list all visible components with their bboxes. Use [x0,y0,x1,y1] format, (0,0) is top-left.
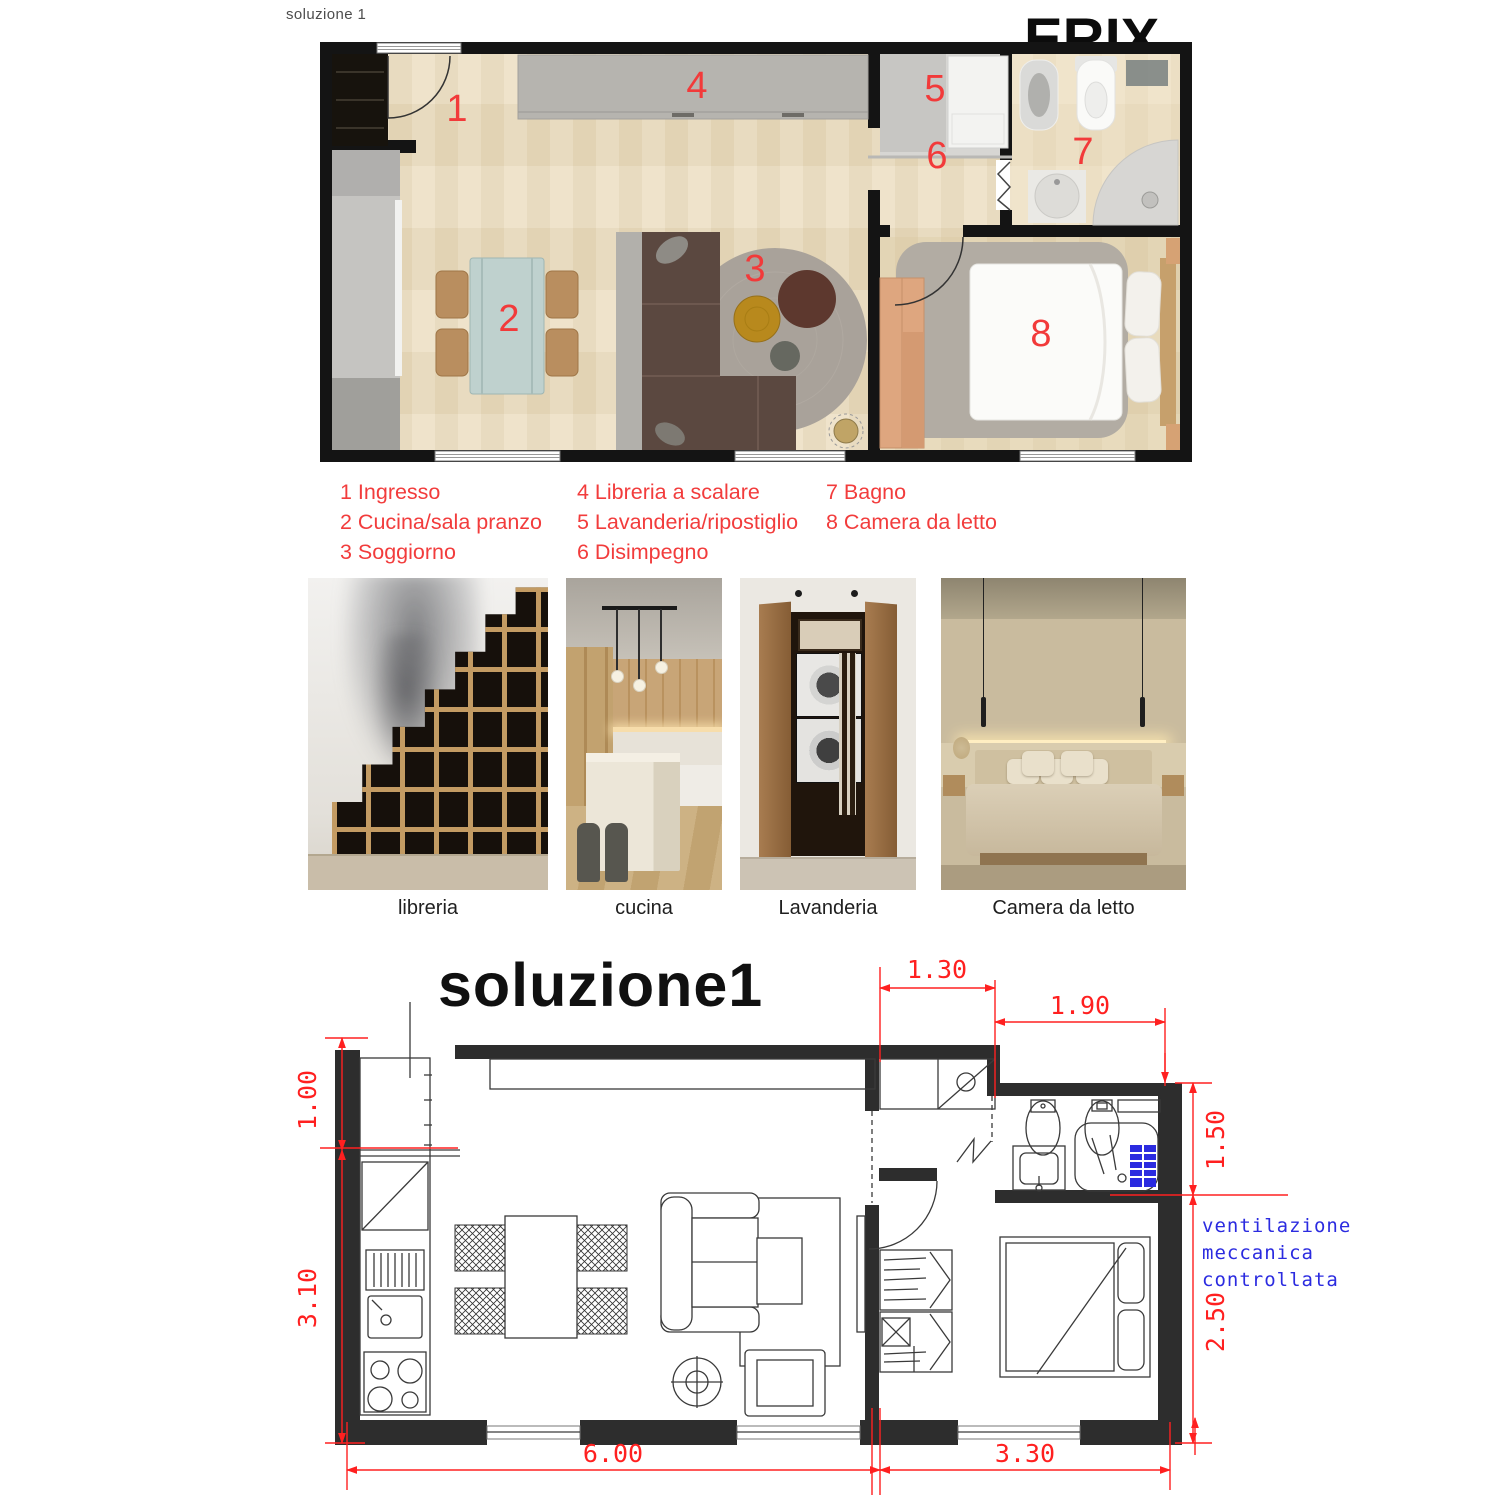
dim-laundry-width: 1.30 [907,955,967,984]
photo-libreria [308,578,548,890]
cad-dining [455,1216,627,1338]
legend-column-1: 1 Ingresso 2 Cucina/sala pranzo 3 Soggio… [340,477,577,567]
cad-windows [487,1426,1080,1439]
bar-stool [577,823,600,882]
pillow [1124,337,1161,403]
room-legend: 1 Ingresso 2 Cucina/sala pranzo 3 Soggio… [340,477,1046,567]
dim-bedroom-side: 2.50 [1201,1292,1230,1352]
coffee-table-gold [734,296,780,342]
pendant-light [1140,697,1145,727]
coffee-table-brown [778,270,836,328]
tile-floor [740,857,916,890]
dim-bath-side: 1.50 [1201,1110,1230,1170]
door-arc [869,1181,937,1249]
ceiling-spotlight [795,590,802,597]
folding-door [957,1139,991,1162]
cad-bedroom [869,1181,1150,1377]
nightstand-bottom [1166,424,1180,450]
nightstand [1162,775,1184,797]
sliding-door-leaf [857,1216,865,1332]
ceiling-spotlight [851,590,858,597]
room-number-7: 7 [1066,130,1100,174]
legend-column-2: 4 Libreria a scalare 5 Lavanderia/ripost… [577,477,826,567]
cad-bathroom [872,1096,1160,1203]
entry-closet [332,54,388,146]
annotation-line: meccanica [1202,1240,1351,1267]
pendant-light [655,661,668,674]
legend-item: 4 Libreria a scalare [577,477,826,507]
bookshelf-outline [490,1059,875,1089]
bed-base [980,853,1147,865]
wardrobe [880,1250,952,1372]
pendant-cord [1142,578,1143,697]
cad-floor-plan: 1.30 1.90 1.00 3.10 1.50 2.50 6.00 3.30 [280,950,1340,1500]
photo-lavanderia [740,578,916,890]
photo-caption: Camera da letto [941,897,1186,920]
photo-camera-da-letto [941,578,1186,890]
pendant-cord [983,578,984,697]
coffee-table [757,1238,802,1304]
pendant-light [981,697,986,727]
chair [455,1288,505,1334]
cad-plan-svg: 1.30 1.90 1.00 3.10 1.50 2.50 6.00 3.30 [280,950,1340,1500]
ironing-boards [839,653,857,815]
cad-kitchen [360,1058,460,1415]
page-label: soluzione 1 [286,6,366,23]
room-number-5: 5 [918,67,952,111]
presentation-page: soluzione 1 ERIX [0,0,1500,1500]
room-number-6: 6 [920,134,954,178]
room-number-2: 2 [492,297,526,341]
under-cabinet-light [613,727,722,732]
bed [966,784,1162,856]
wood-door-right [865,602,897,864]
legend-item: 7 Bagno [826,477,1046,507]
headboard [1160,258,1176,426]
chair [577,1288,627,1334]
pillow [1118,1310,1144,1370]
chair [455,1225,505,1271]
wood-door-left [759,602,791,864]
nightstand [943,775,965,797]
cad-furniture [360,1002,1160,1416]
coffee-table-gray [770,341,800,371]
legend-item: 6 Disimpegno [577,537,826,567]
kitchen-counter [332,150,402,450]
annotation-line: ventilazione [1202,1213,1351,1240]
console-shelf [616,232,642,450]
room-number-3: 3 [738,247,772,291]
dim-kitchen-top: 1.00 [293,1070,322,1130]
room-number-8: 8 [1024,312,1058,356]
pillow [1118,1243,1144,1303]
photo-caption: cucina [566,897,722,920]
legend-item: 3 Soggiorno [340,537,577,567]
washing-machine [948,56,1008,148]
legend-column-3: 7 Bagno 8 Camera da letto [826,477,1046,567]
bar-stool [605,823,628,882]
ventilation-annotation: ventilazione meccanica controllata [1202,1213,1351,1294]
ventilation-unit [1130,1145,1156,1187]
wood-floor [308,854,548,890]
nightstand-top [1166,238,1180,264]
kitchen-island [586,753,680,872]
annotation-line: controllata [1202,1267,1351,1294]
dim-bath-width: 1.90 [1050,991,1110,1020]
pillow [1022,751,1054,776]
photo-cucina [566,578,722,890]
pendant-cord [638,609,640,681]
dim-kitchen-side: 3.10 [293,1268,322,1328]
rendered-floor-plan: 1 2 3 4 5 6 7 8 [320,42,1192,462]
pillow [1061,751,1093,776]
cad-living [661,1193,865,1416]
storage-shelf [798,619,862,651]
pillow [1124,271,1161,337]
legend-item: 1 Ingresso [340,477,577,507]
bath-mat [1126,60,1168,86]
ceiling [941,578,1186,619]
pendant-cord [660,609,662,662]
bed [1000,1237,1150,1377]
dim-living-bottom: 6.00 [583,1439,643,1468]
hallway-folding-door [996,160,1010,210]
shelf [1118,1100,1160,1112]
room-number-1: 1 [440,87,474,131]
room-number-4: 4 [680,64,714,108]
legend-item: 5 Lavanderia/ripostiglio [577,507,826,537]
dim-bedroom-bottom: 3.30 [995,1439,1055,1468]
chair [577,1225,627,1271]
island-countertop [586,753,680,762]
pendant-cord [616,609,618,671]
photo-caption: libreria [308,897,548,920]
legend-item: 8 Camera da letto [826,507,1046,537]
photo-caption: Lavanderia [740,897,916,920]
floor [941,865,1186,890]
floor-lamp [834,419,858,443]
dining-table [505,1216,577,1338]
cad-laundry [880,1059,995,1109]
shower-drain [1142,192,1158,208]
legend-item: 2 Cucina/sala pranzo [340,507,577,537]
